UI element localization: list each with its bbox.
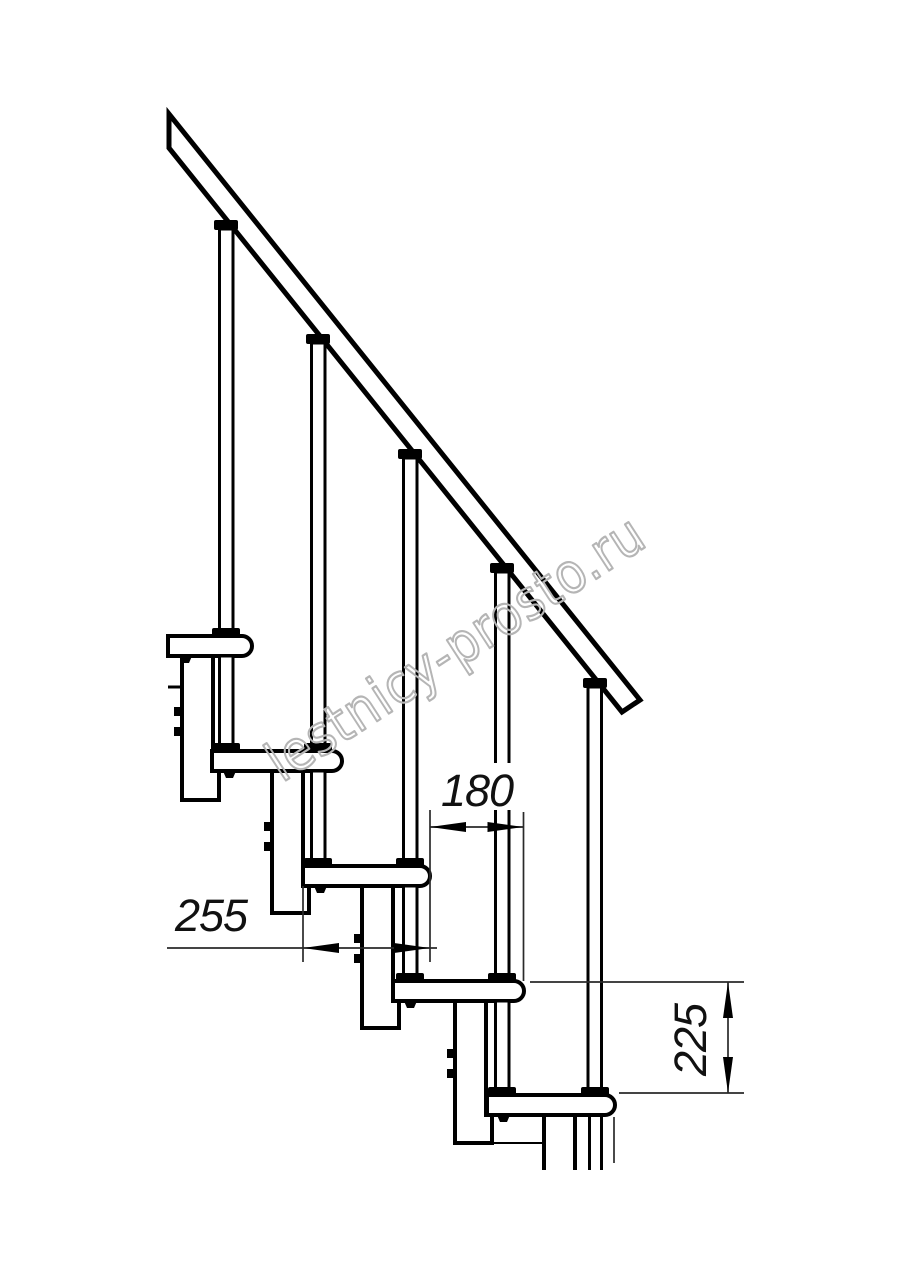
dimension-label-225: 225 <box>665 1002 716 1077</box>
dimension-225: 225 <box>530 982 744 1093</box>
tread-1 <box>168 636 252 656</box>
module-1 <box>182 656 219 800</box>
staircase-drawing-canvas: 180 255 225 lestnicy-prosto.ru <box>0 0 914 1280</box>
baluster-2 <box>312 343 326 866</box>
tread-4 <box>393 981 524 1001</box>
module-5 <box>544 1115 575 1170</box>
tread-5 <box>487 1095 615 1115</box>
module-4 <box>455 1001 492 1143</box>
module-3 <box>362 886 399 1028</box>
tread-3 <box>303 866 430 886</box>
baluster-3 <box>404 458 418 981</box>
dimension-label-180: 180 <box>441 765 514 816</box>
staircase-technical-drawing-page: 180 255 225 lestnicy-prosto.ru <box>0 0 914 1280</box>
baluster-1 <box>220 229 234 751</box>
dimension-label-255: 255 <box>174 890 249 941</box>
